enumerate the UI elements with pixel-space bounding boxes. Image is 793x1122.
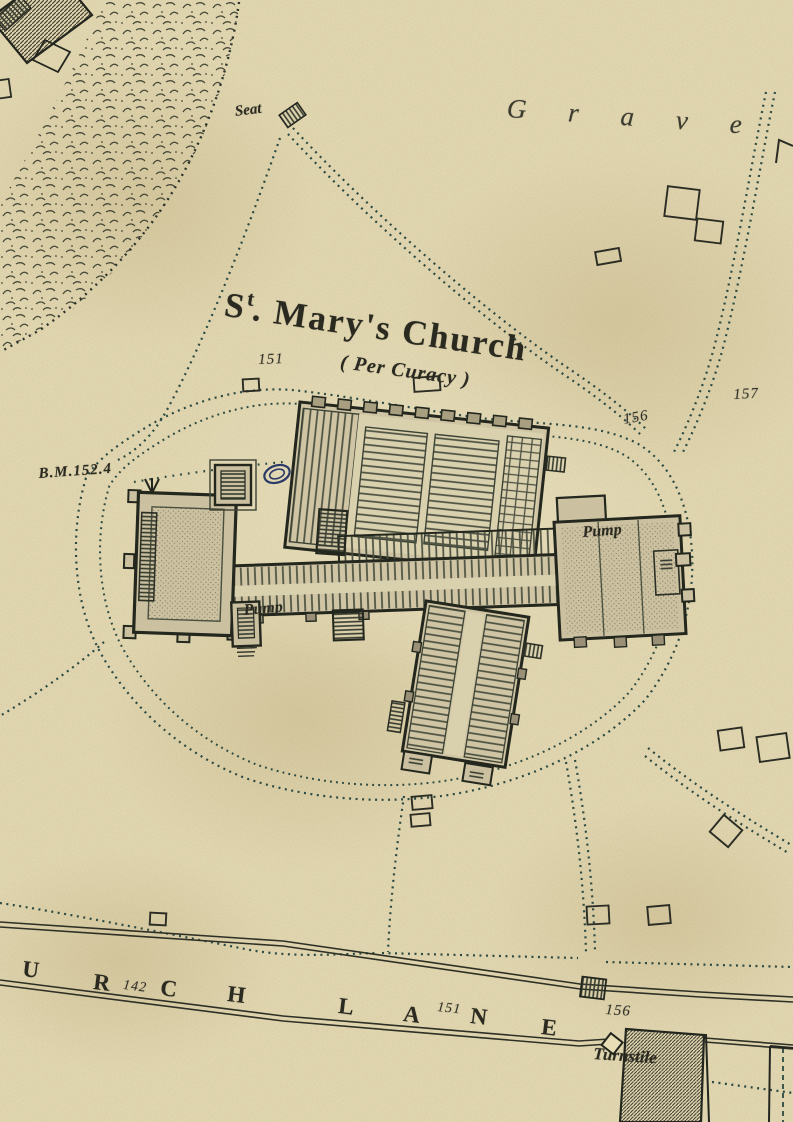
church-nw-annex (210, 460, 256, 510)
spot-height-157-ne: 157 (733, 386, 759, 404)
pump-east-label: Pump (582, 521, 622, 542)
lane-letter-c: C (159, 975, 179, 1003)
spot-height-151-lane: 151 (436, 1000, 462, 1018)
spot-height-151-nw: 151 (258, 351, 284, 369)
lane-letter-n: N (469, 1003, 489, 1031)
map-canvas: St. Mary's Church ( Per Curacy ) Grave S… (0, 0, 793, 1122)
spot-height-142-lane: 142 (122, 978, 148, 997)
church-north-porch (316, 509, 347, 555)
lane-letter-a: A (402, 1001, 422, 1029)
turnstile-building (620, 1029, 704, 1122)
lane-letter-h: H (226, 981, 247, 1009)
map-linework (0, 0, 793, 1122)
lane-letter-r: R (92, 969, 112, 997)
lane-letter-u: U (21, 956, 41, 984)
seat-label: Seat (234, 101, 263, 121)
gate-symbol (580, 977, 606, 1000)
pump-west-label: Pump (243, 599, 284, 620)
lane-letter-l: L (337, 993, 355, 1021)
church-west-tower (121, 488, 244, 644)
lane-letter-e: E (540, 1014, 558, 1042)
spot-height-156-lane: 156 (605, 1002, 632, 1021)
